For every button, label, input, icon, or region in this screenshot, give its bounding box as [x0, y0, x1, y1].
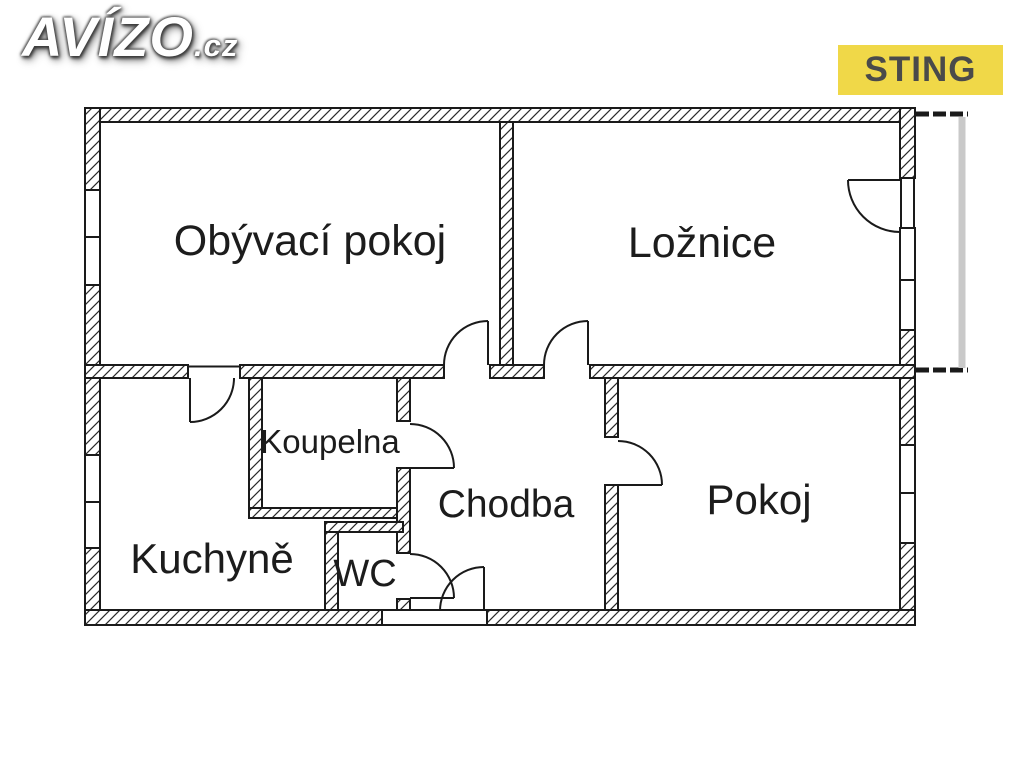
room-label-bathroom: Koupelna [260, 423, 400, 460]
sting-badge: STING [838, 45, 1003, 95]
wall-mid-seg4 [590, 365, 915, 378]
wall-right-middle [900, 330, 915, 445]
wall-hallway-left-seg2 [397, 468, 410, 553]
entrance-niche [382, 610, 487, 625]
wall-wc-top [325, 522, 403, 532]
avizo-logo: AVÍZO.cz [22, 4, 238, 69]
door-room [618, 441, 662, 485]
floorplan-canvas: Obývací pokoj Ložnice Koupelna Chodba Ku… [0, 0, 1024, 768]
window-left-kitchen [85, 455, 100, 548]
wall-mid-seg2 [240, 365, 444, 378]
room-labels: Obývací pokoj Ložnice Koupelna Chodba Ku… [130, 217, 811, 595]
wall-mid-seg3 [490, 365, 544, 378]
door-bedroom [544, 321, 588, 365]
window-left-livingroom [85, 190, 100, 285]
wall-livingroom-bedroom [500, 122, 513, 365]
wall-right-upper [900, 108, 915, 178]
wall-hallway-right-seg1 [605, 378, 618, 437]
room-label-living-room: Obývací pokoj [174, 217, 446, 265]
door-livingroom [444, 321, 488, 365]
window-right-room [900, 445, 915, 543]
room-label-hallway: Chodba [438, 483, 575, 526]
room-label-kitchen: Kuchyně [130, 535, 293, 582]
wall-bottom-right [487, 610, 915, 625]
balcony [916, 114, 968, 370]
room-label-room: Pokoj [706, 476, 811, 523]
wall-hallway-right-seg2 [605, 485, 618, 610]
door-balcony [848, 180, 900, 232]
window-right-bedroom [900, 228, 915, 330]
floorplan-svg: Obývací pokoj Ložnice Koupelna Chodba Ku… [0, 0, 1024, 768]
wall-left-upper [85, 108, 100, 190]
room-label-bedroom: Ložnice [628, 219, 776, 267]
sting-badge-label: STING [865, 50, 977, 90]
door-wc [410, 554, 454, 598]
avizo-logo-brand: AVÍZO [22, 5, 194, 68]
avizo-logo-tld: .cz [194, 28, 238, 63]
balcony-door-opening [901, 178, 914, 228]
wall-bottom-left [85, 610, 382, 625]
door-kitchen [188, 367, 240, 423]
room-label-wc: WC [333, 553, 396, 595]
wall-top [85, 108, 915, 122]
wall-bathroom-bottom [249, 508, 408, 518]
wall-hallway-left-seg3 [397, 599, 410, 610]
wall-mid-seg1 [85, 365, 188, 378]
wall-hallway-left-seg1 [397, 378, 410, 421]
door-bathroom [410, 424, 454, 468]
